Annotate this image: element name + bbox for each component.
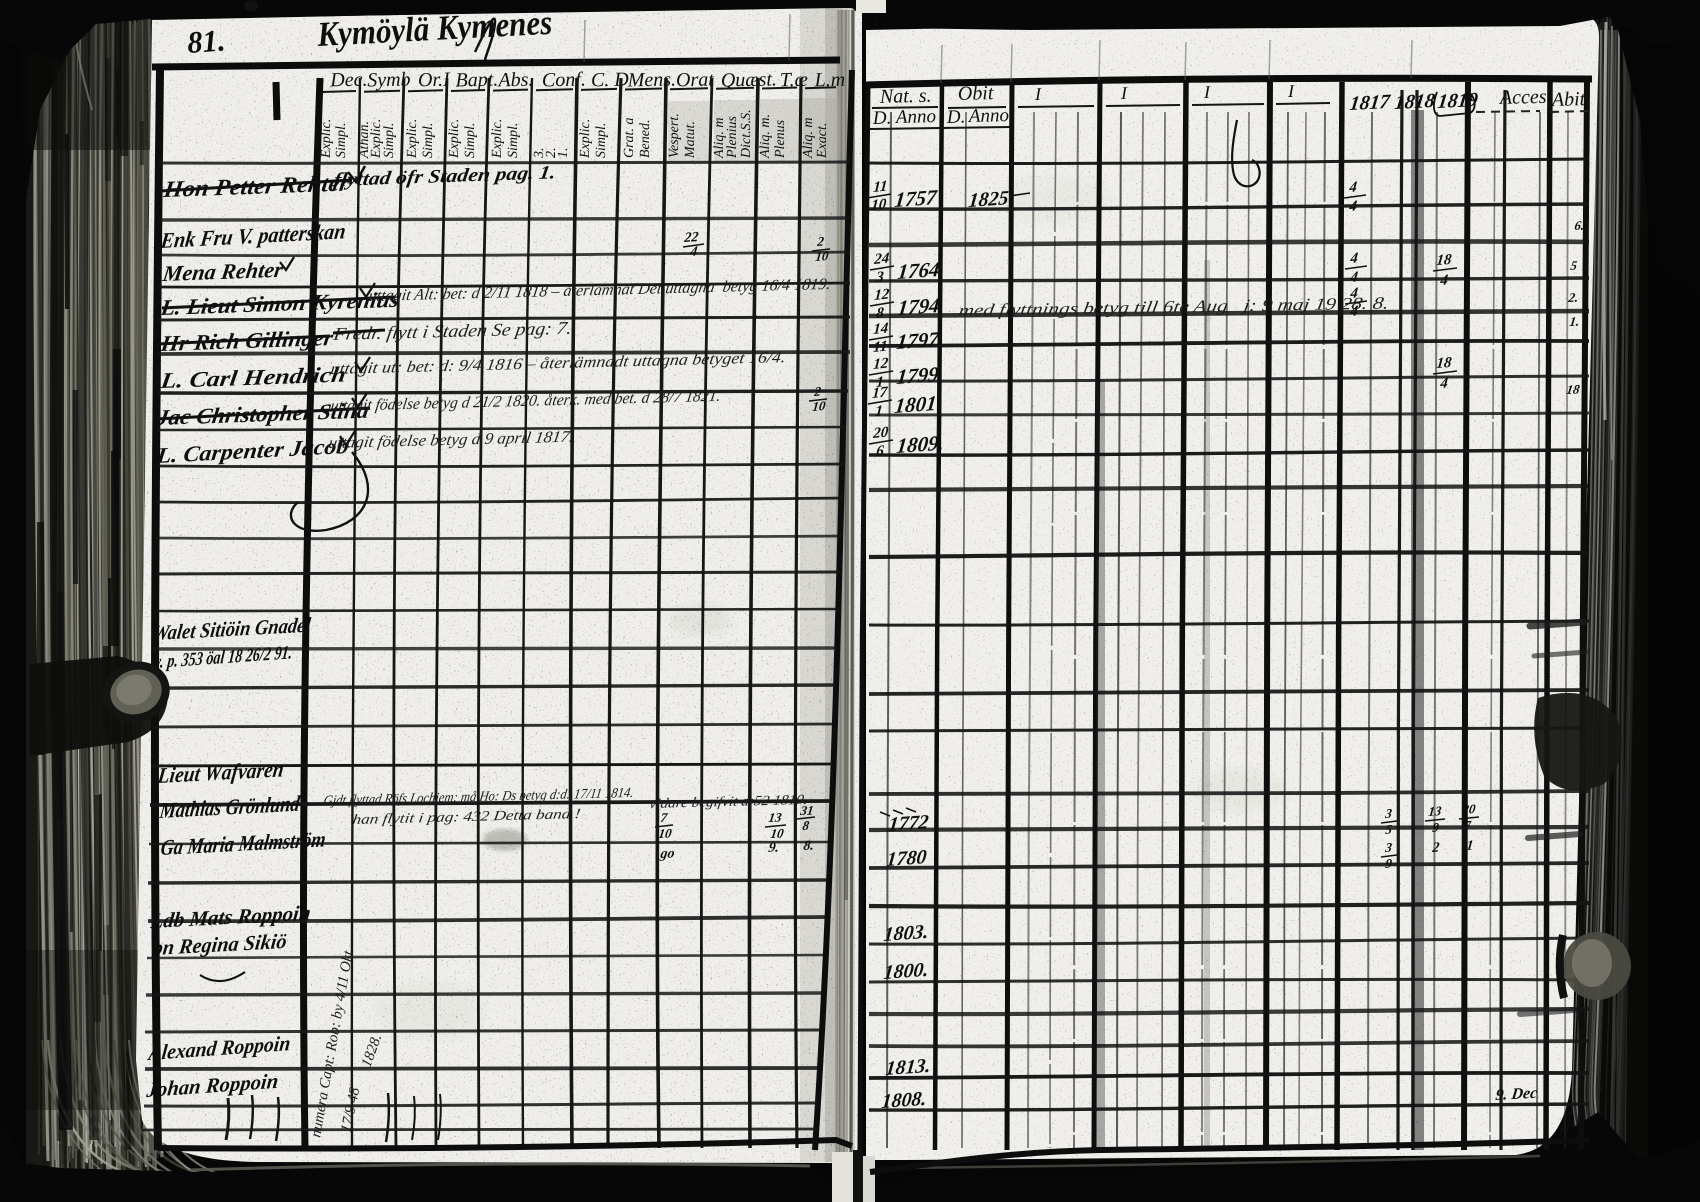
svg-text:1757: 1757 [893,185,939,212]
svg-text:1825: 1825 [967,187,1009,212]
svg-text:Simpl.: Simpl. [463,123,478,158]
svg-text:Aliq. m: Aliq. m [801,118,816,159]
svg-text:1780: 1780 [885,846,927,871]
svg-text:1803.: 1803. [882,921,929,946]
svg-text:Mena Rehter: Mena Rehter [160,257,285,286]
svg-text:Plenus: Plenus [773,119,788,159]
svg-text:D.: D. [872,108,892,130]
svg-text:20: 20 [872,424,890,442]
svg-text:11: 11 [873,338,888,356]
svg-text:go: go [658,846,675,862]
svg-text:20: 20 [1461,801,1477,817]
svg-text:1.: 1. [556,148,571,159]
svg-text:17: 17 [872,384,889,402]
svg-text:1794: 1794 [896,293,940,320]
svg-text:24: 24 [873,250,891,268]
svg-text:11: 11 [873,178,888,196]
svg-text:Abs.: Abs. [496,69,533,92]
svg-text:Exact.: Exact. [815,123,830,159]
svg-text:18: 18 [1436,355,1453,372]
svg-text:4: 4 [689,244,699,260]
svg-text:2.: 2. [1567,290,1580,305]
svg-text:Simpl.: Simpl. [421,123,436,158]
svg-text:Vespert.: Vespert. [667,113,682,158]
svg-text:I: I [1120,83,1128,103]
svg-text:1819: 1819 [1436,89,1479,113]
svg-text:1801: 1801 [893,391,937,418]
svg-text:Obit: Obit [958,82,995,105]
svg-text:1764: 1764 [896,257,940,284]
svg-text:14: 14 [873,320,890,338]
svg-text:Aliq. m.: Aliq. m. [758,114,773,159]
svg-text:12: 12 [874,286,891,304]
svg-text:2: 2 [1431,840,1441,856]
svg-text:1772: 1772 [887,811,929,836]
svg-text:Acces.: Acces. [1498,86,1552,109]
svg-text:81.: 81. [186,22,226,60]
svg-text:Explic.: Explic. [447,119,462,159]
svg-text:C. D: C. D [591,69,630,92]
svg-text:D.: D. [946,107,966,129]
svg-text:Explic.: Explic. [490,119,505,159]
svg-text:I: I [1034,84,1042,104]
svg-text:1808.: 1808. [880,1088,927,1113]
svg-text:Simpl.: Simpl. [506,123,521,158]
svg-text:31: 31 [799,802,815,818]
svg-text:12: 12 [873,355,890,373]
svg-text:Dict.S.S.: Dict.S.S. [739,109,754,159]
svg-text:1: 1 [875,403,884,420]
svg-text:Bapt.: Bapt. [455,69,498,92]
svg-text:Matut.: Matut. [683,121,698,159]
svg-text:Grat. a: Grat. a [622,118,637,158]
svg-text:1800.: 1800. [882,959,929,984]
svg-text:Simpl.: Simpl. [594,123,609,158]
svg-text:Dec.: Dec. [329,69,368,92]
svg-text:Simpl.: Simpl. [382,123,397,158]
svg-text:13: 13 [1428,803,1443,819]
svg-text:9.: 9. [767,841,780,856]
svg-text:I: I [1203,82,1211,102]
svg-text:1818: 1818 [1393,90,1436,114]
svg-text:1809.: 1809. [895,431,945,459]
svg-text:1813.: 1813. [884,1055,931,1080]
svg-text:Anno: Anno [894,106,937,128]
svg-text:Plenius: Plenius [725,115,740,159]
svg-text:Nat. s.: Nat. s. [879,85,932,108]
svg-text:Abit.: Abit. [1550,88,1591,111]
svg-text:10: 10 [871,196,888,214]
svg-text:I: I [1287,81,1295,101]
svg-text:9. Dec: 9. Dec [1495,1085,1539,1104]
svg-text:Explic.: Explic. [578,119,593,159]
svg-text:1799.: 1799. [895,362,945,390]
svg-text:18: 18 [1436,252,1453,269]
svg-text:1797.: 1797. [895,327,945,355]
svg-text:1817: 1817 [1348,91,1392,115]
svg-text:Conf.: Conf. [542,69,586,92]
svg-text:Simpl.: Simpl. [334,123,349,158]
svg-text:Bened.: Bened. [638,120,653,158]
svg-text:8.: 8. [802,839,815,854]
svg-text:Anno.: Anno. [967,105,1014,127]
svg-text:Explic.: Explic. [405,119,420,159]
